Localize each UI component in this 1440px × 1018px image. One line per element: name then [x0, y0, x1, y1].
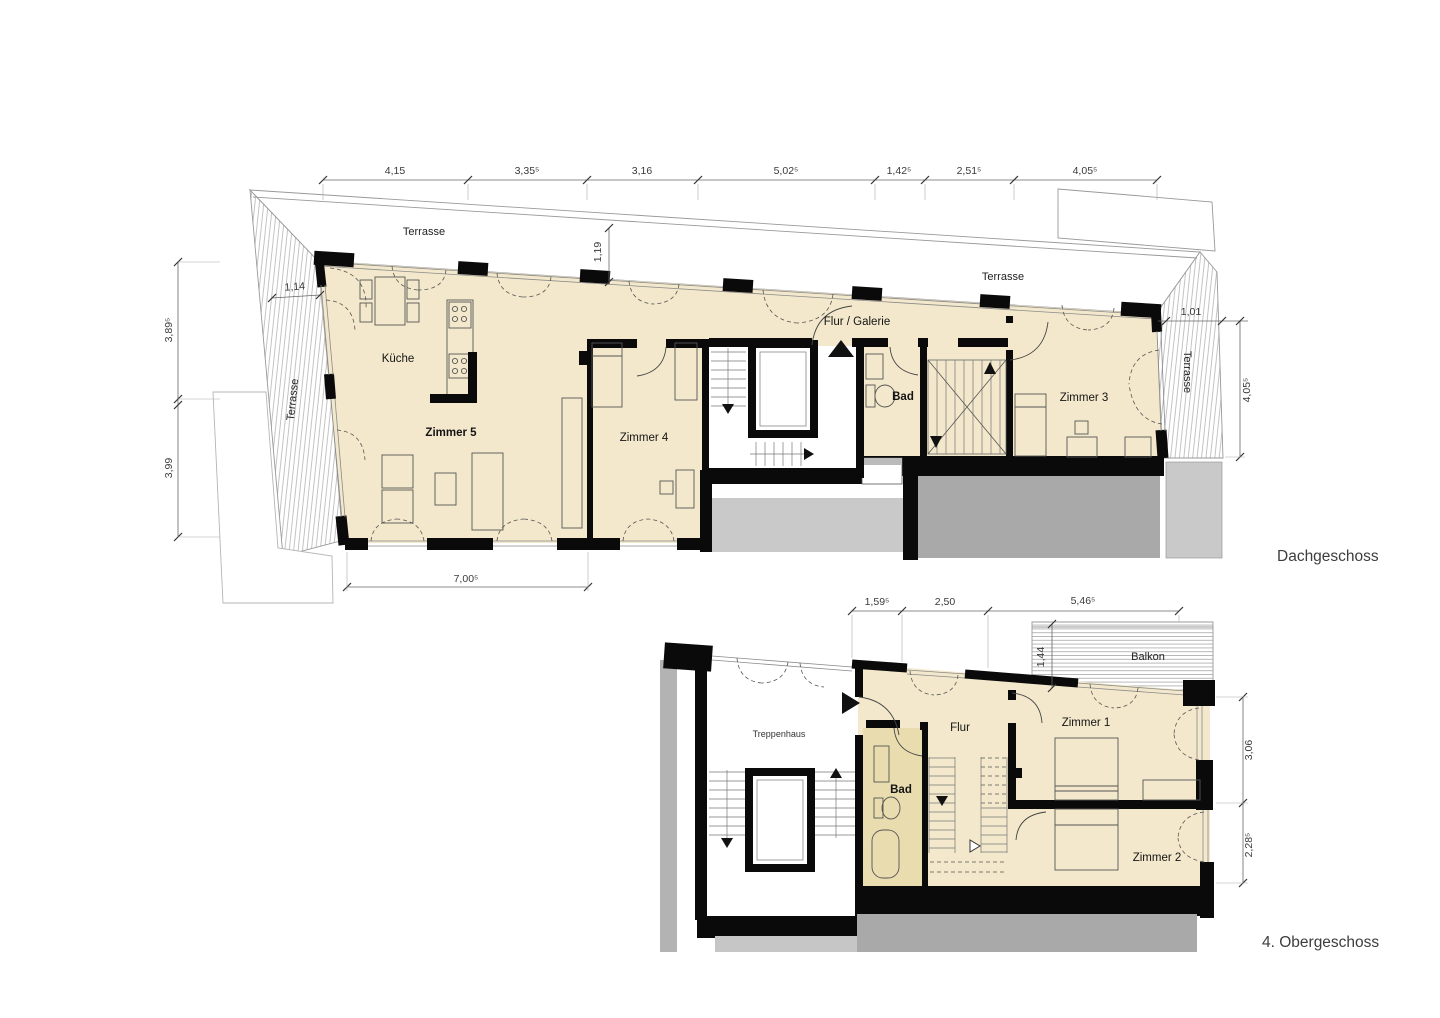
- dg-label-terrasse-top: Terrasse: [403, 226, 445, 238]
- og-dim-balkon: 1,44: [1035, 647, 1047, 668]
- dg-roof-outline-topright: [1058, 189, 1215, 251]
- dg-dim-1-01: 1,01: [1181, 306, 1202, 318]
- dg-title: Dachgeschoss: [1277, 548, 1379, 565]
- og-dim-top-2: 2,50: [935, 596, 956, 608]
- og-stair-arrow-down-icon: [721, 838, 733, 848]
- og-stair-arrow-up-icon: [830, 768, 842, 778]
- og-dim-right-2: 2,28⁵: [1243, 833, 1255, 858]
- dg-dim-bottom: 7,00⁵: [454, 573, 479, 585]
- og-dim-top-1: 1,59⁵: [865, 596, 890, 608]
- dg-label-flur-galerie: Flur / Galerie: [824, 316, 890, 328]
- dg-label-zimmer5: Zimmer 5: [425, 427, 477, 439]
- dg-label-zimmer4: Zimmer 4: [620, 432, 669, 444]
- dg-label-terrasse-right: Terrasse: [1181, 351, 1193, 393]
- dg-label-zimmer3: Zimmer 3: [1060, 392, 1109, 404]
- dg-elevator: [748, 340, 818, 438]
- dg-dim-left-1: 3,89⁵: [163, 318, 175, 343]
- dg-dim-1-14: 1,14: [284, 280, 305, 293]
- dg-label-terrasse-top2: Terrasse: [982, 271, 1024, 283]
- og-label-bad: Bad: [890, 784, 912, 796]
- dg-label-kueche: Küche: [382, 353, 415, 365]
- og-label-balkon: Balkon: [1131, 651, 1165, 663]
- og-dim-right-1: 3,06: [1243, 740, 1255, 761]
- dg-dim-1-19: 1,19: [592, 242, 604, 263]
- dg-dim-top-7: 4,05⁵: [1073, 165, 1098, 177]
- floorplan-drawing: 4,15 3,35⁵ 3,16 5,02⁵ 1,42⁵ 2,51⁵ 4,05⁵ …: [0, 0, 1440, 1018]
- floorplan-sheet: 4,15 3,35⁵ 3,16 5,02⁵ 1,42⁵ 2,51⁵ 4,05⁵ …: [0, 0, 1440, 1018]
- dg-dim-top-5: 1,42⁵: [887, 165, 912, 177]
- dg-dim-top-2: 3,35⁵: [515, 165, 540, 177]
- floorplan-dachgeschoss: 4,15 3,35⁵ 3,16 5,02⁵ 1,42⁵ 2,51⁵ 4,05⁵ …: [163, 165, 1379, 603]
- og-label-zimmer2: Zimmer 2: [1133, 852, 1182, 864]
- dg-dim-right: 4,05⁵: [1241, 378, 1253, 403]
- og-elevator: [745, 768, 815, 872]
- floorplan-obergeschoss: 1,59⁵ 2,50 5,46⁵ 1,44 3,06 2,28⁵ Balkon …: [660, 595, 1379, 952]
- og-label-flur: Flur: [950, 722, 970, 734]
- og-label-zimmer1: Zimmer 1: [1062, 717, 1111, 729]
- og-title: 4. Obergeschoss: [1262, 934, 1379, 951]
- og-dim-top-3: 5,46⁵: [1071, 595, 1096, 607]
- dg-dim-top-6: 2,51⁵: [957, 165, 982, 177]
- og-label-treppenhaus: Treppenhaus: [753, 729, 806, 739]
- dg-roof-below: [700, 456, 1222, 560]
- dg-dim-left-2: 3,99: [163, 458, 175, 479]
- dg-label-bad: Bad: [892, 391, 914, 403]
- dg-dim-top-1: 4,15: [385, 165, 406, 177]
- dg-dim-top-3: 3,16: [632, 165, 653, 177]
- dg-dim-top-4: 5,02⁵: [774, 165, 799, 177]
